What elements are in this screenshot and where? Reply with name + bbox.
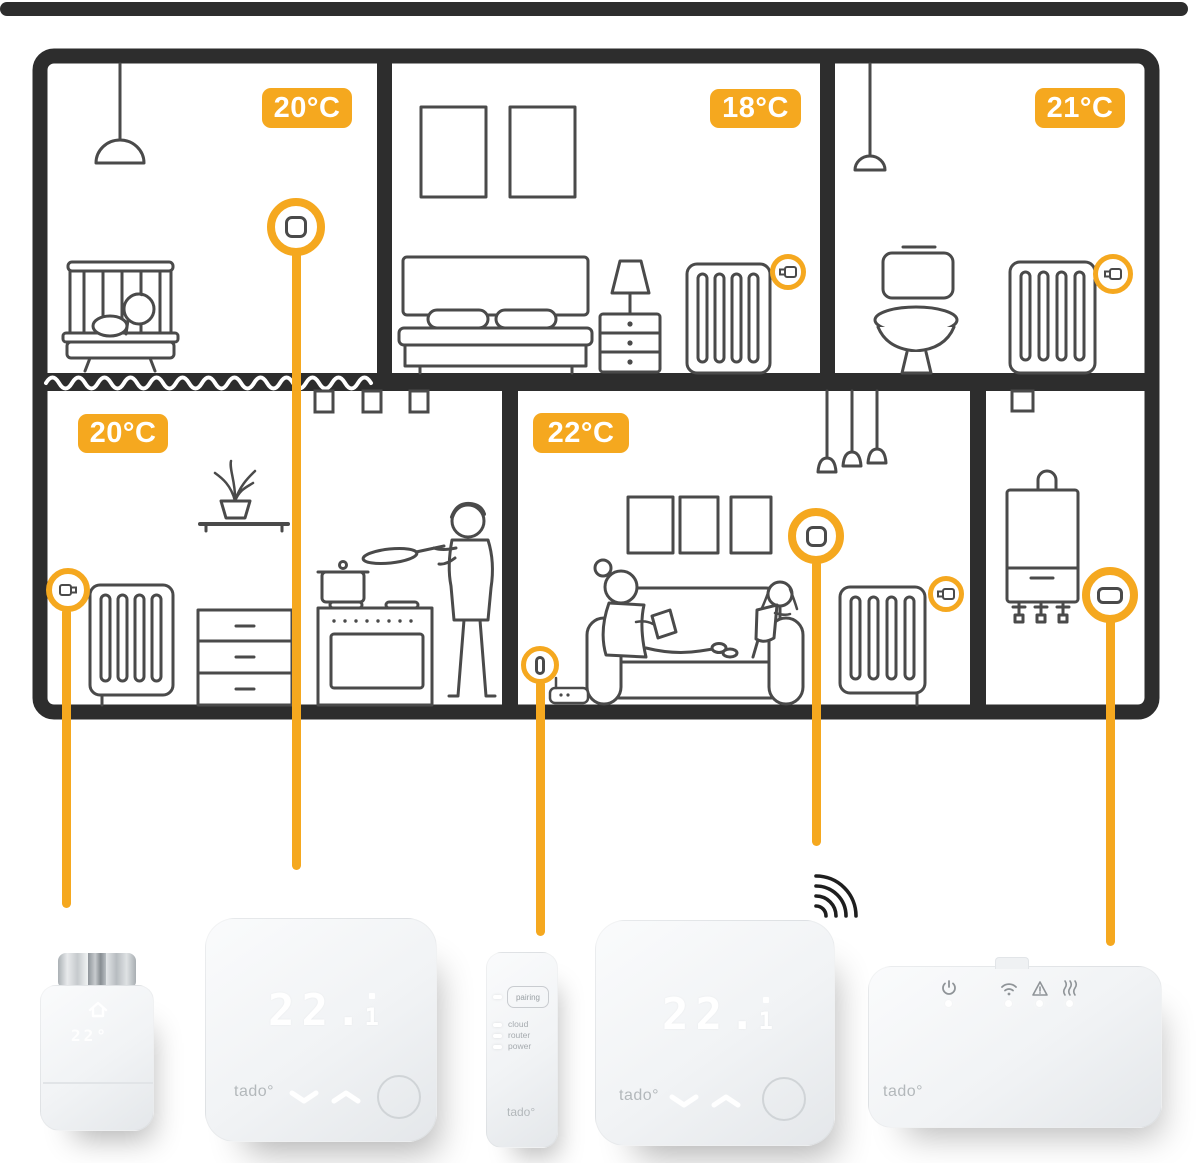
- radiator-icon: [840, 587, 925, 705]
- chevron-up-icon: [330, 1089, 362, 1105]
- pendant-lamp-trio-icon: [818, 391, 886, 472]
- connector-line-radiator-thermostat: [62, 608, 71, 908]
- wireless-receiver-icon: [1097, 587, 1123, 604]
- wall-living-boiler: [970, 389, 986, 709]
- pairing-button: pairing: [507, 986, 549, 1008]
- bedroom-illustration: [399, 107, 770, 373]
- tado-logo: tado°: [883, 1083, 923, 1101]
- thermostat-display: 22°: [71, 1026, 109, 1045]
- radiator-valve-icon: [58, 583, 78, 597]
- ceiling-notches: [315, 391, 1033, 412]
- boiler-room-illustration: [1007, 471, 1078, 622]
- thermostat-button: [377, 1075, 421, 1119]
- connector-line-internet-bridge: [536, 680, 545, 936]
- picture-frame-icon: [421, 107, 486, 197]
- wall-bedroom-bathroom: [820, 60, 835, 375]
- tado-home-heating-diagram: 20°C 18°C 21°C 20°C 22°C 22° 22.1 tado° …: [0, 0, 1200, 1163]
- nightstand-icon: [600, 314, 660, 372]
- radiator-icon: [90, 585, 173, 705]
- temp-badge-nursery: 20°C: [262, 88, 352, 128]
- pairing-led: [493, 995, 502, 999]
- marker-kitchen-radiator-valve: [46, 568, 90, 612]
- radiator-icon: [1010, 262, 1095, 373]
- internet-bridge-icon: [535, 656, 545, 675]
- thermostat-display: 22.1: [662, 989, 773, 1040]
- tado-logo: tado°: [507, 1105, 535, 1119]
- router-icon: [550, 678, 588, 703]
- wall-kitchen-living: [502, 389, 518, 709]
- drawer-unit-icon: [198, 610, 292, 705]
- power-label: power: [508, 1041, 531, 1051]
- body-seam: [43, 1082, 153, 1084]
- marker-bedroom-radiator-valve: [770, 254, 806, 290]
- product-smart-thermostat-a: 22.1 tado°: [205, 918, 437, 1142]
- cooking-person-icon: [434, 504, 495, 696]
- temp-value: 20°C: [90, 417, 157, 450]
- marker-nursery-thermostat: [267, 198, 325, 256]
- radiator-valve-icon: [1103, 267, 1123, 281]
- temp-value: 22°C: [548, 417, 615, 450]
- marker-internet-bridge: [521, 646, 559, 684]
- radiator-valve-icon: [778, 265, 798, 279]
- frying-pan-icon: [362, 546, 444, 566]
- radiator-valve-icon: [936, 587, 956, 601]
- chevron-down-icon: [668, 1093, 700, 1109]
- heating-icon: [1061, 979, 1079, 997]
- wifi-signal-icon: [810, 870, 862, 922]
- marker-bathroom-radiator-valve: [1093, 254, 1133, 294]
- power-led: [945, 1000, 952, 1007]
- boiler-icon: [1007, 471, 1078, 622]
- chevron-up-icon: [710, 1093, 742, 1109]
- temp-badge-bathroom: 21°C: [1035, 88, 1125, 128]
- temp-badge-bedroom: 18°C: [710, 89, 801, 128]
- roof-bar: [0, 2, 1188, 16]
- router-led: [493, 1034, 502, 1038]
- connector-line-smart-thermostat-a: [292, 250, 301, 870]
- cloud-label: cloud: [508, 1019, 528, 1029]
- power-icon: [940, 979, 958, 997]
- marker-wireless-receiver: [1082, 567, 1138, 623]
- picture-frame-icon: [680, 497, 718, 553]
- picture-frame-icon: [510, 107, 575, 197]
- receiver-tab: [995, 957, 1029, 969]
- bedside-lamp-icon: [612, 261, 649, 314]
- chevron-down-icon: [288, 1089, 320, 1105]
- smart-thermostat-icon: [285, 216, 307, 238]
- picture-frame-icon: [628, 497, 673, 553]
- pendant-lamp-icon: [855, 64, 885, 170]
- product-internet-bridge: pairing cloud router power tado°: [486, 952, 558, 1148]
- power-led: [493, 1045, 502, 1049]
- heating-led: [1066, 1000, 1073, 1007]
- temp-value: 20°C: [274, 92, 341, 125]
- wifi-led: [1005, 1000, 1012, 1007]
- marker-living-room-radiator-valve: [928, 576, 964, 612]
- warning-icon: [1031, 980, 1049, 997]
- picture-frame-icon: [731, 497, 771, 553]
- thermostat-button: [762, 1077, 806, 1121]
- thermostat-dial: [58, 953, 136, 987]
- nursery-illustration: [63, 64, 178, 371]
- pendant-lamp-icon: [96, 64, 144, 163]
- product-smart-thermostat-b: 22.1 tado°: [595, 920, 835, 1146]
- temp-value: 21°C: [1047, 92, 1114, 125]
- product-wireless-receiver: tado°: [868, 966, 1162, 1128]
- cloud-led: [493, 1023, 502, 1027]
- connector-line-wireless-receiver: [1106, 618, 1115, 946]
- tado-logo: tado°: [619, 1087, 659, 1105]
- tado-logo: tado°: [234, 1083, 274, 1101]
- thermostat-body: 22°: [40, 985, 154, 1131]
- temp-badge-kitchen: 20°C: [78, 414, 168, 453]
- radiator-icon: [687, 264, 770, 373]
- house-icon: [87, 1000, 109, 1020]
- marker-living-room-thermostat: [788, 508, 844, 564]
- thermostat-display: 22.1: [268, 985, 379, 1036]
- warning-led: [1036, 1000, 1043, 1007]
- bed-icon: [399, 257, 592, 373]
- connector-line-smart-thermostat-b: [812, 560, 821, 846]
- toilet-icon: [875, 247, 957, 373]
- router-label: router: [508, 1030, 530, 1040]
- wifi-icon: [999, 980, 1019, 996]
- cooking-pot-icon: [318, 562, 368, 603]
- smart-thermostat-icon: [806, 526, 827, 547]
- wall-nursery-bedroom: [377, 60, 392, 375]
- temp-badge-living-room: 22°C: [533, 413, 629, 453]
- temp-value: 18°C: [722, 92, 789, 125]
- stove-icon: [318, 602, 432, 705]
- shelf-plant-icon: [200, 461, 288, 531]
